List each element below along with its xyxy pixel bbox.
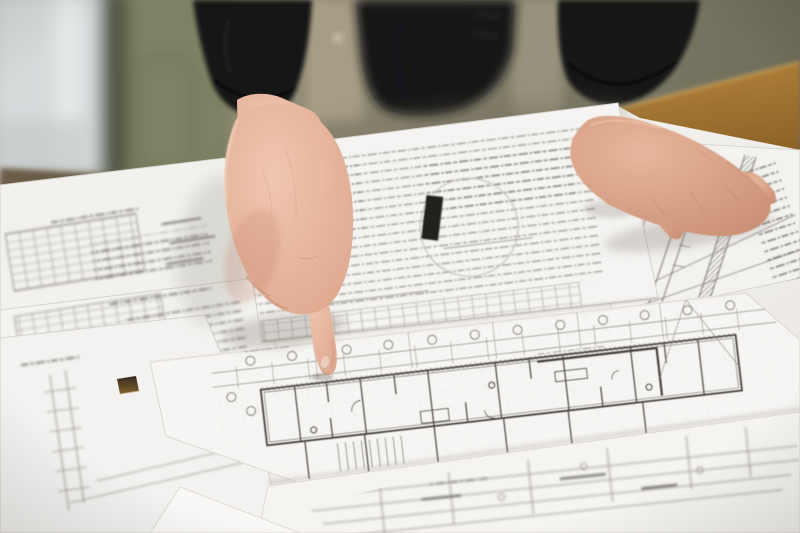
vignette xyxy=(0,0,800,533)
photo-blueprint-pointing xyxy=(0,0,800,533)
photo-canvas xyxy=(0,0,800,533)
